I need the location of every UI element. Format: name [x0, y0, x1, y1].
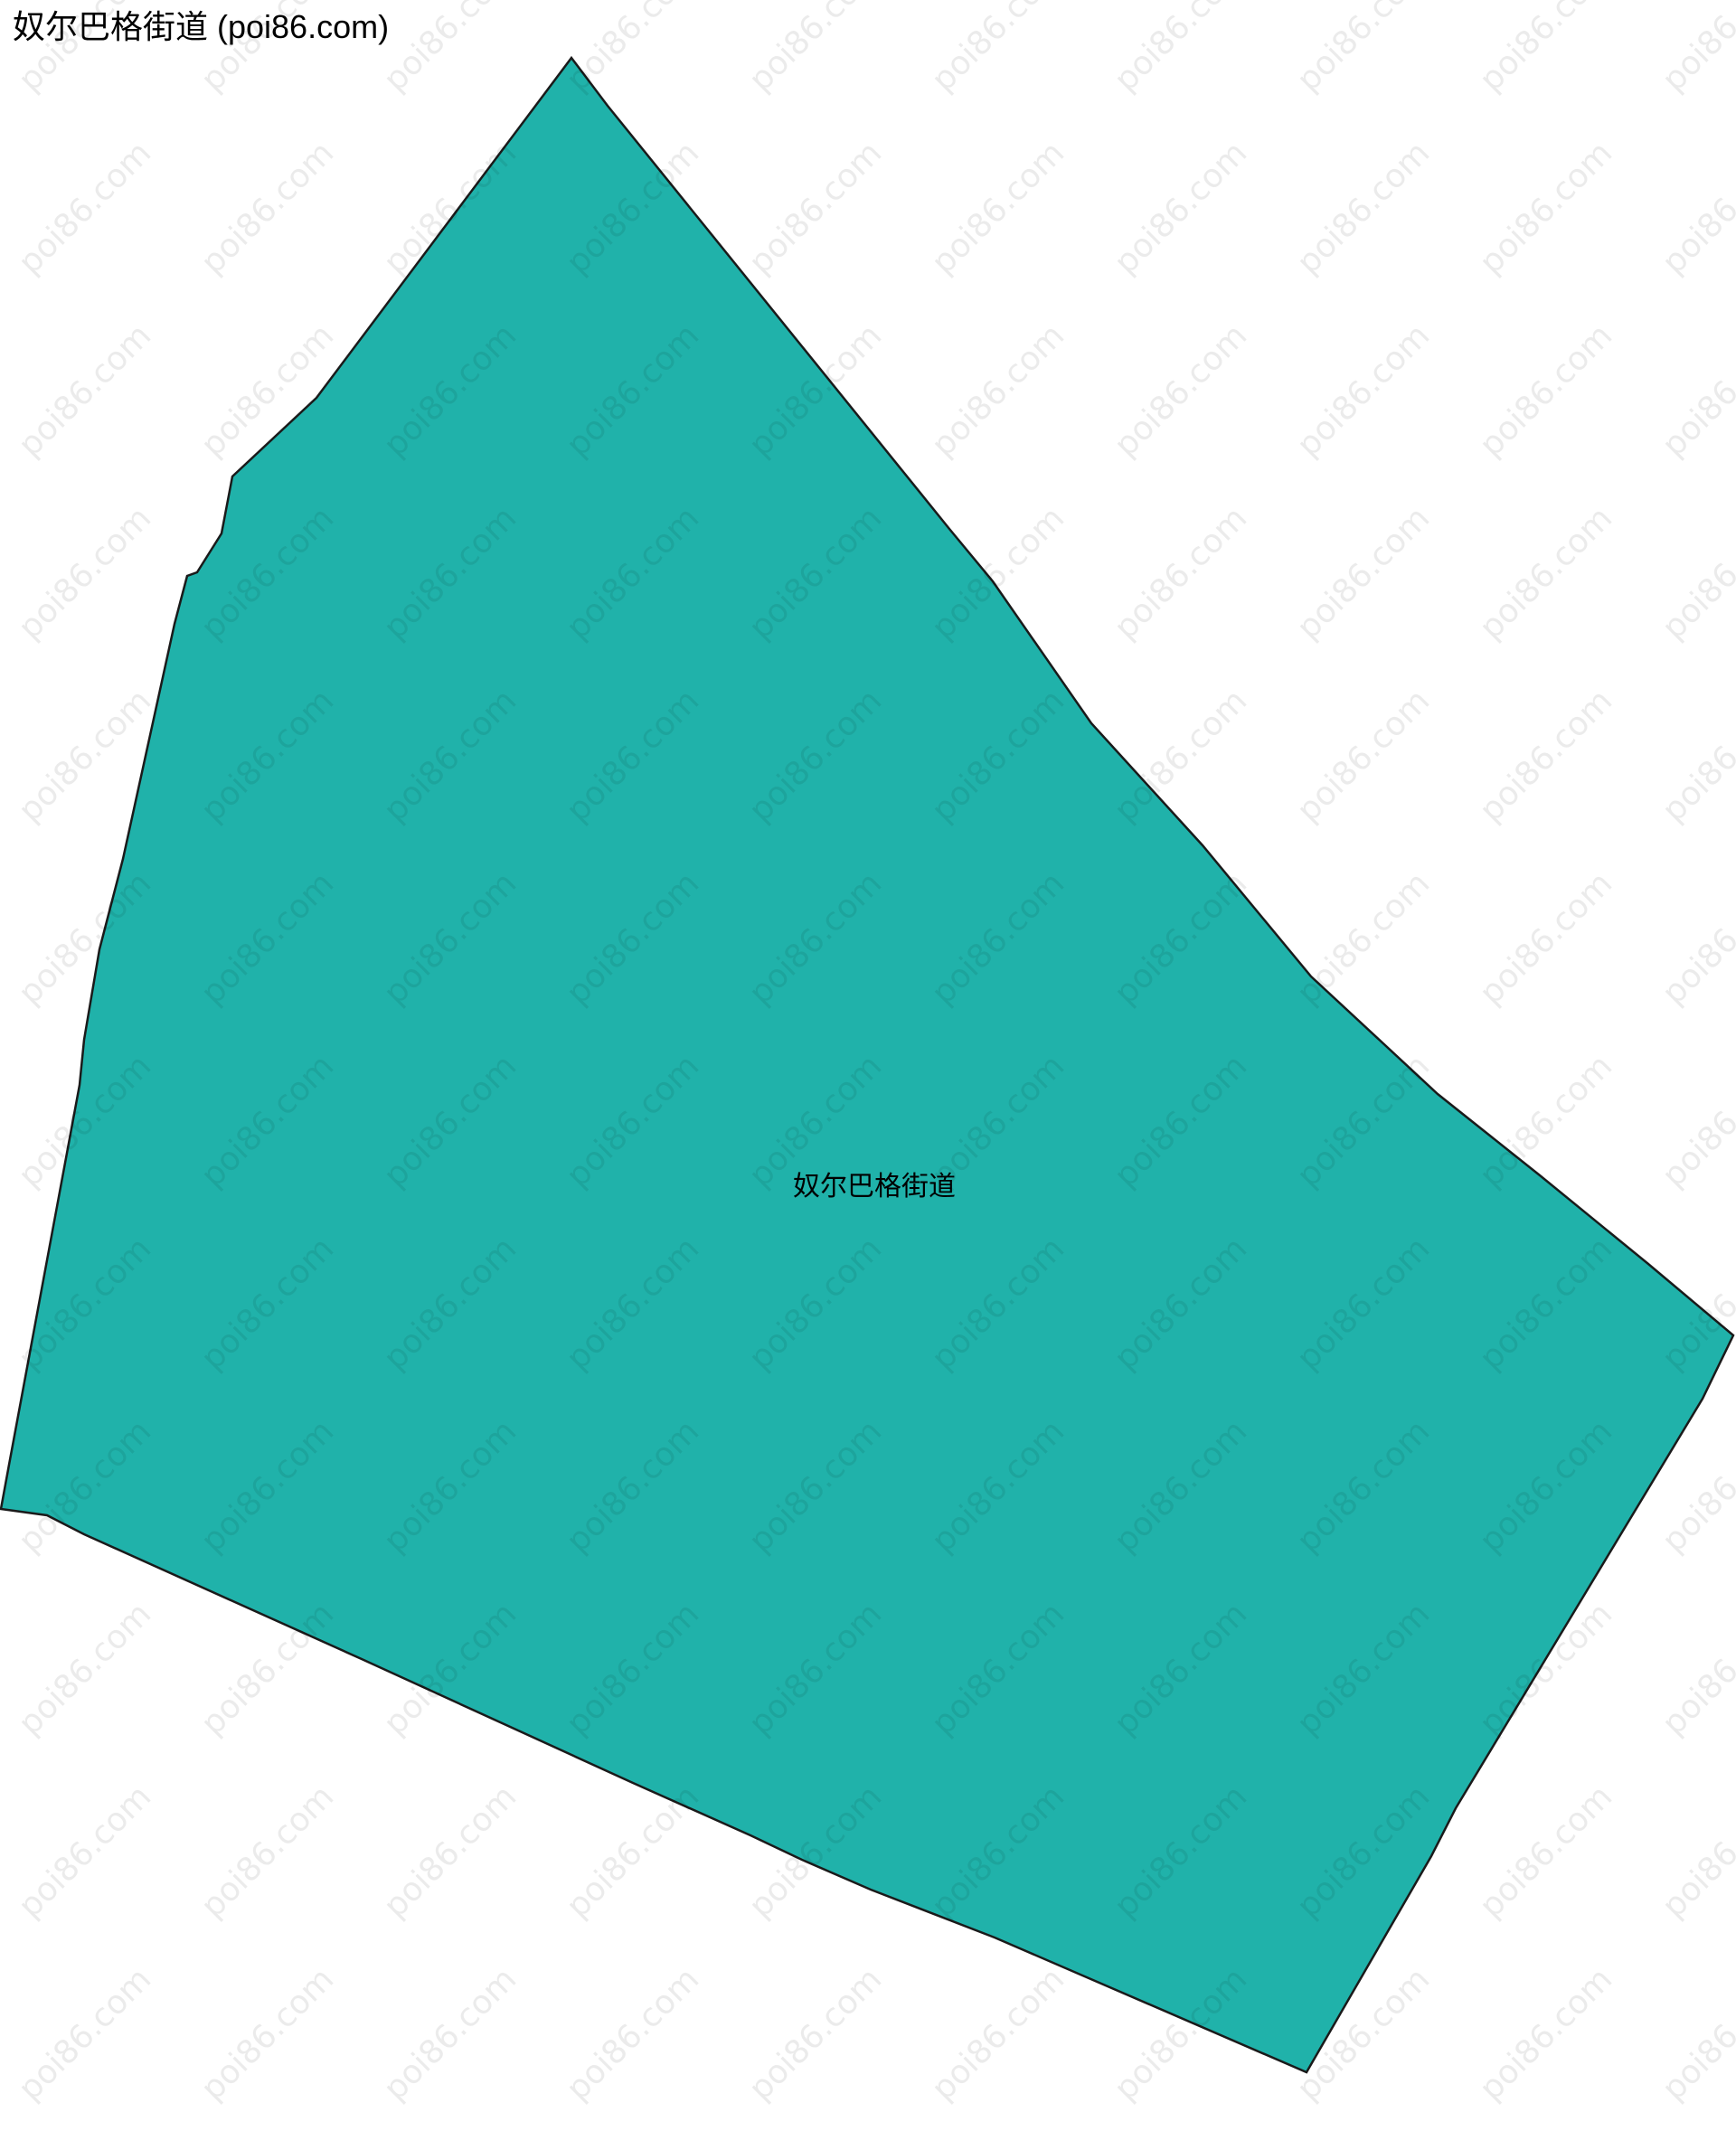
- page-title: 奴尔巴格街道 (poi86.com): [13, 7, 389, 46]
- map-canvas: poi86.compoi86.compoi86.compoi86.compoi8…: [0, 0, 1736, 2131]
- region-polygon: [1, 58, 1733, 2072]
- boundary-map: [0, 0, 1736, 2131]
- region-label: 奴尔巴格街道: [793, 1164, 956, 1203]
